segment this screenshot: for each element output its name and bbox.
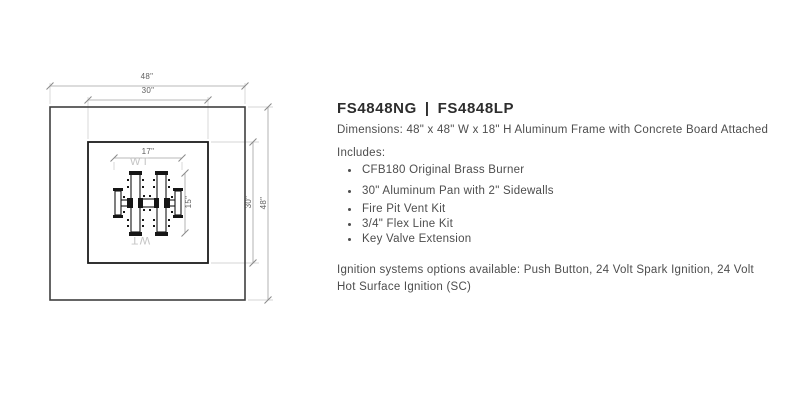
dimensions-line: Dimensions: 48" x 48" W x 18" H Aluminum… — [337, 124, 768, 136]
model-lp: FS4848LP — [438, 100, 515, 117]
list-item: 30" Aluminum Pan with 2" Sidewalls — [337, 185, 554, 198]
bullet-dot — [348, 223, 351, 226]
list-item: Fire Pit Vent Kit — [337, 203, 554, 216]
dim-label-pan-width: 30" — [136, 86, 160, 96]
bullet-dot — [348, 238, 351, 241]
dim-label-burner-height: 15" — [184, 190, 194, 214]
bullet-dot — [348, 208, 351, 211]
dim-label-outer-width: 48" — [135, 72, 159, 82]
model-ng: FS4848NG — [337, 100, 417, 117]
bullet-dot — [348, 190, 351, 193]
ignition-options: Ignition systems options available: Push… — [337, 262, 754, 296]
list-item-label: CFB180 Original Brass Burner — [362, 164, 524, 176]
product-title: FS4848NG|FS4848LP — [337, 100, 514, 117]
list-item-label: 3/4" Flex Line Kit — [362, 218, 453, 230]
list-item-label: Key Valve Extension — [362, 233, 471, 245]
list-item-label: 30" Aluminum Pan with 2" Sidewalls — [362, 185, 554, 197]
ignition-options-line: Hot Surface Ignition (SC) — [337, 279, 754, 296]
spec-sheet-page: 48" 30" 17" 15" 30" 48" WT WT FS4848NG|F… — [0, 0, 800, 400]
list-item: 3/4" Flex Line Kit — [337, 218, 554, 231]
watermark-top: WT — [125, 156, 155, 168]
burner-drawing — [113, 171, 183, 236]
diagram-drawing — [30, 55, 290, 315]
dim-label-outer-height: 48" — [259, 191, 269, 215]
list-item-label: Fire Pit Vent Kit — [362, 203, 446, 215]
watermark-bottom: WT — [125, 234, 155, 246]
list-item: Key Valve Extension — [337, 233, 554, 246]
bullet-dot — [348, 169, 351, 172]
ignition-options-line: Ignition systems options available: Push… — [337, 262, 754, 279]
model-separator: | — [425, 100, 430, 117]
includes-label: Includes: — [337, 147, 385, 159]
product-info: FS4848NG|FS4848LP Dimensions: 48" x 48" … — [337, 0, 797, 400]
list-item: CFB180 Original Brass Burner — [337, 164, 554, 177]
dimension-diagram: 48" 30" 17" 15" 30" 48" WT WT — [30, 55, 290, 315]
dim-label-pan-height: 30" — [244, 190, 254, 214]
includes-list: CFB180 Original Brass Burner 30" Aluminu… — [337, 164, 554, 246]
